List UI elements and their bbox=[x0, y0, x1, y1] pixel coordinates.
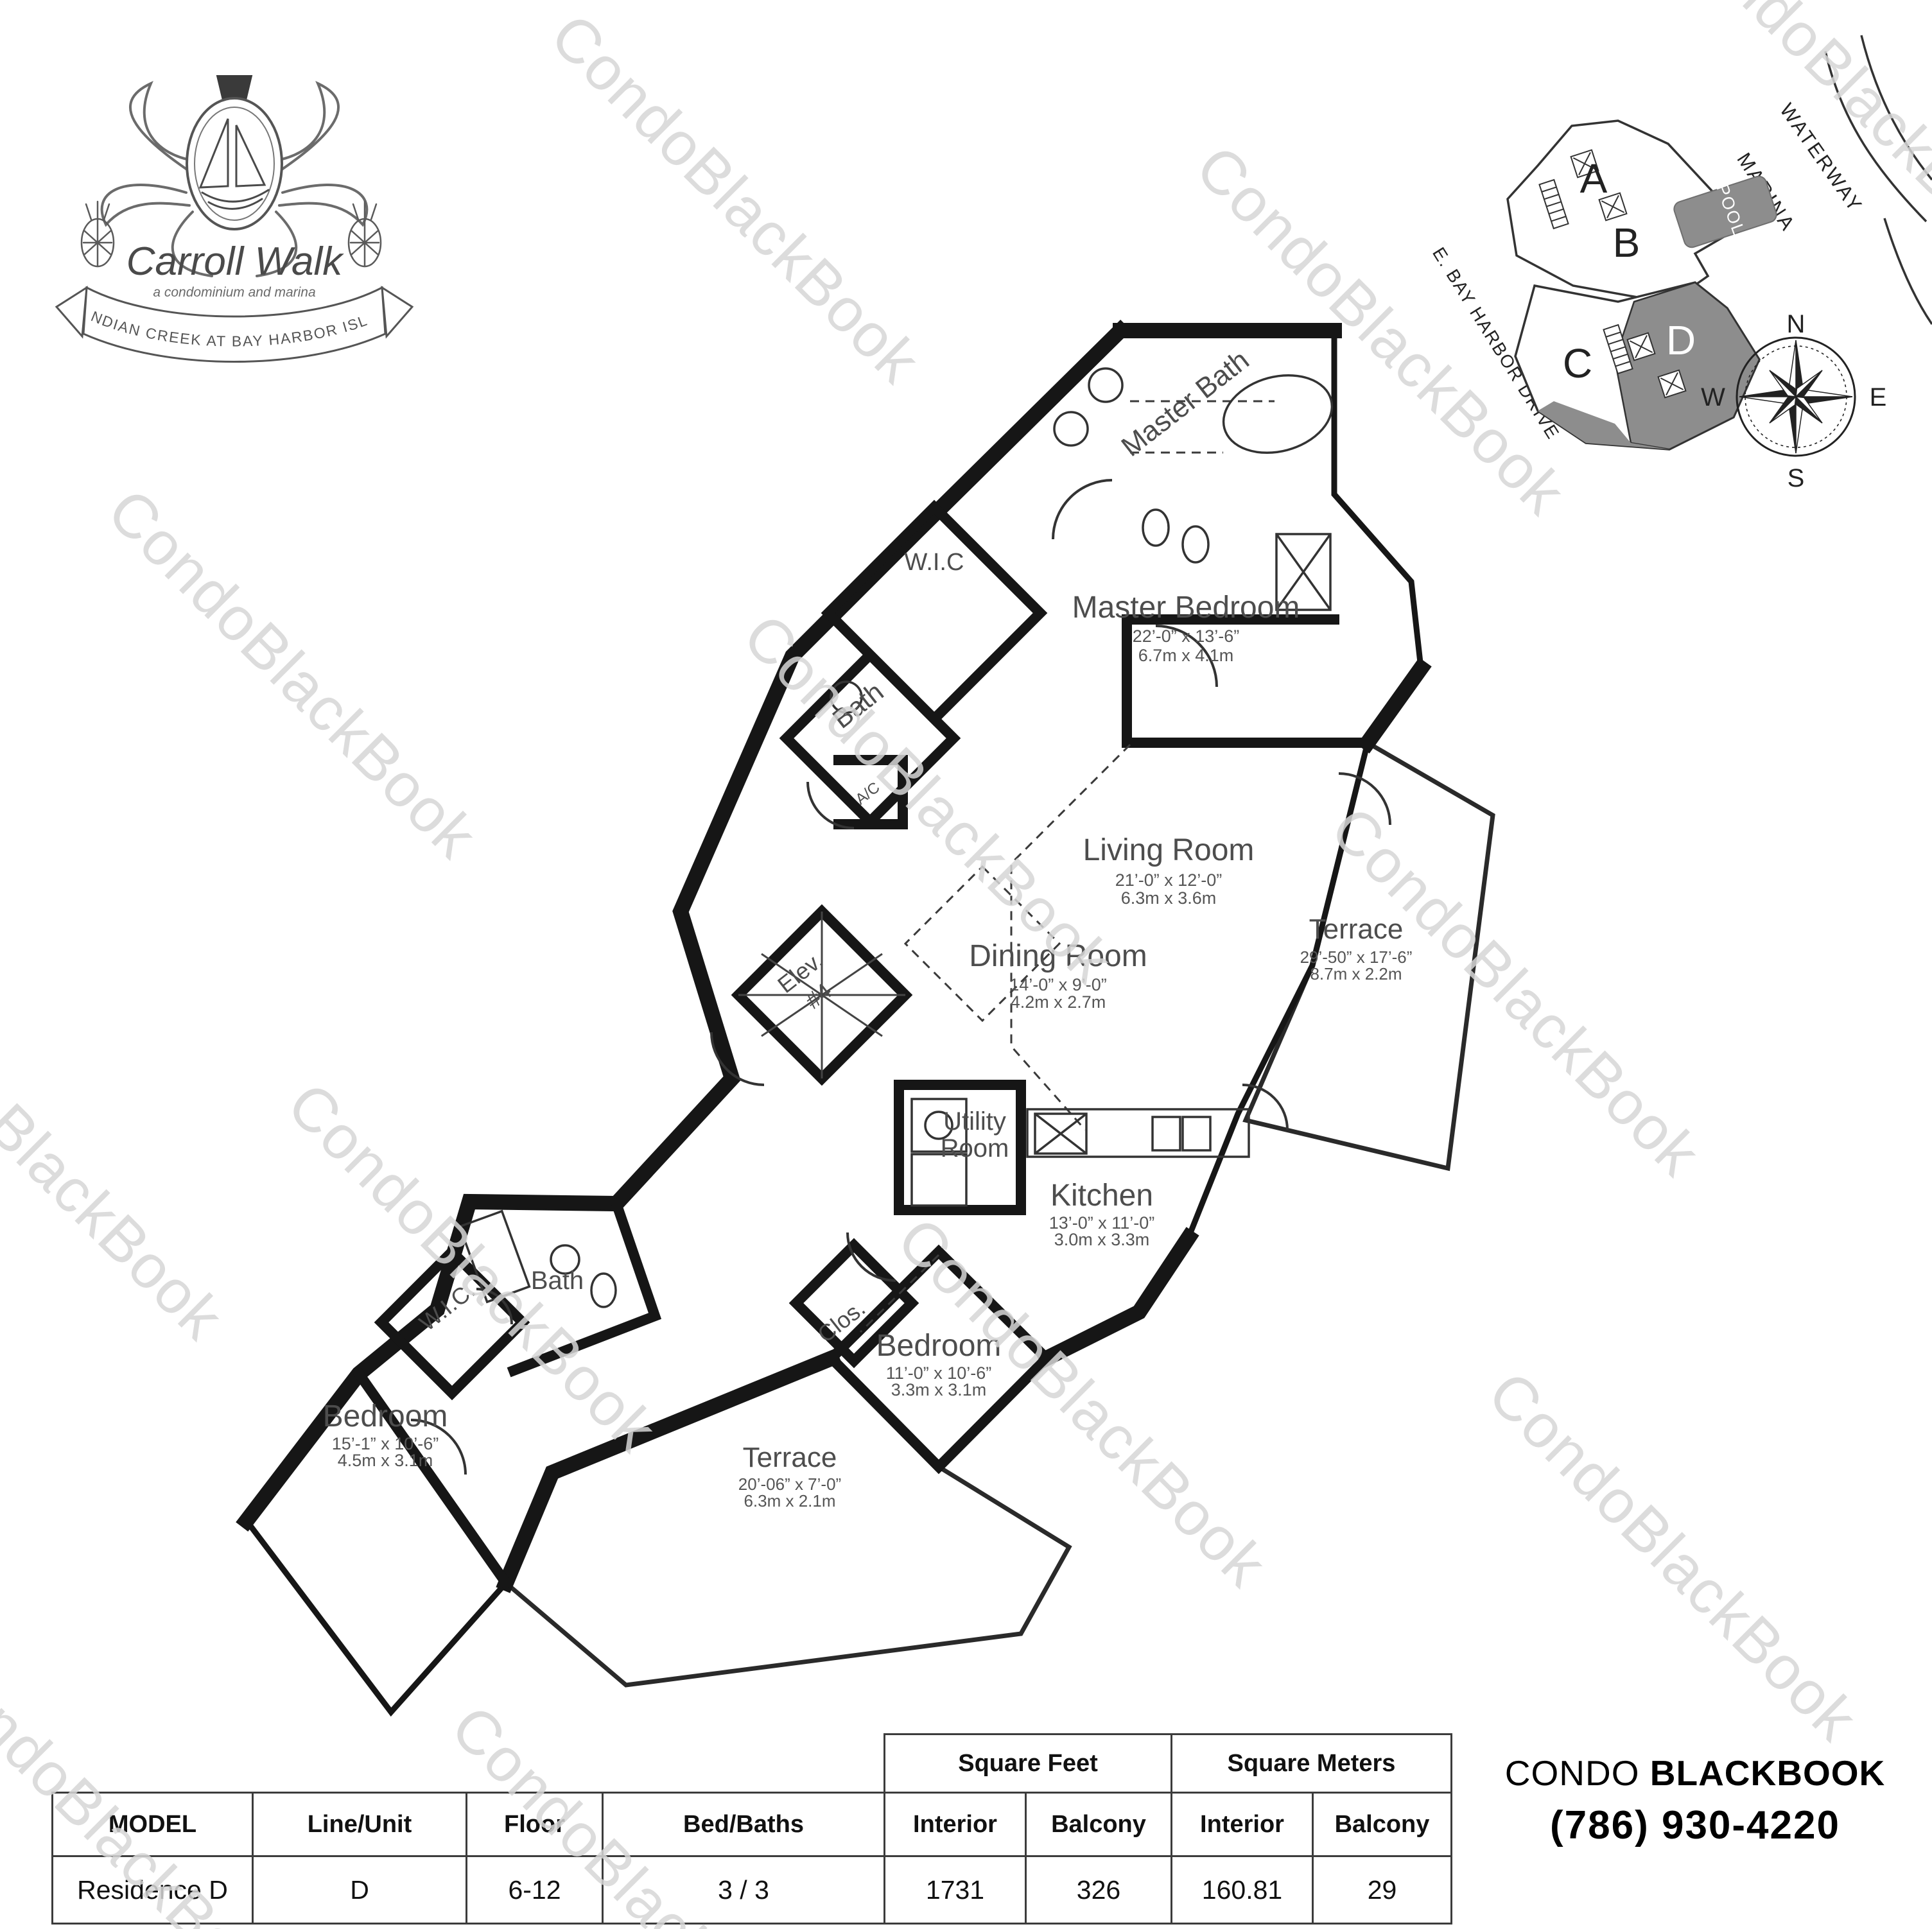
col-header-floor: Floor bbox=[467, 1793, 603, 1856]
table-data-row: Residence D D 6-12 3 / 3 1731 326 160.81… bbox=[53, 1856, 1452, 1924]
logo-subtitle: a condominium and marina bbox=[153, 285, 315, 300]
building-d-highlight bbox=[1615, 282, 1759, 449]
waterway-label: WATERWAY bbox=[1775, 99, 1867, 216]
col-header-line-unit: Line/Unit bbox=[253, 1793, 467, 1856]
room-label-utility-1: Utility bbox=[943, 1107, 1006, 1136]
room-label-kitchen: Kitchen bbox=[1050, 1179, 1153, 1213]
brand-name-bold: BLACKBOOK bbox=[1650, 1753, 1885, 1793]
cell-sqft-interior: 1731 bbox=[885, 1856, 1026, 1924]
room-dim-m: 4.2m x 2.7m bbox=[1011, 992, 1106, 1012]
building-c-label: C bbox=[1563, 340, 1592, 386]
room-label-wic-upper: W.I.C bbox=[905, 549, 964, 576]
room-dim-m: 3.3m x 3.1m bbox=[891, 1380, 987, 1399]
table-spacer bbox=[253, 1734, 467, 1793]
brand-name: CONDO BLACKBOOK bbox=[1477, 1752, 1913, 1794]
compass-e-label: E bbox=[1870, 383, 1887, 411]
room-label-living: Living Room bbox=[1083, 833, 1255, 867]
site-map: WATERWAY MARINA E. BAY HARBOR DRIVE bbox=[1429, 35, 1932, 492]
cell-sqm-interior: 160.81 bbox=[1172, 1856, 1313, 1924]
table-spacer bbox=[467, 1734, 603, 1793]
compass-n-label: N bbox=[1787, 310, 1806, 338]
room-label-utility-2: Room bbox=[941, 1134, 1009, 1163]
room-dim-m: 6.3m x 3.6m bbox=[1121, 888, 1217, 908]
col-header-sqm-interior: Interior bbox=[1172, 1793, 1313, 1856]
building-b-label: B bbox=[1613, 220, 1640, 266]
room-dim-m: 6.3m x 2.1m bbox=[744, 1491, 835, 1510]
table-spacer bbox=[53, 1734, 253, 1793]
branding-block: CONDO BLACKBOOK (786) 930-4220 bbox=[1477, 1752, 1913, 1848]
pineapple-icon-right bbox=[349, 202, 381, 266]
cell-model: Residence D bbox=[53, 1856, 253, 1924]
col-header-sqft-interior: Interior bbox=[885, 1793, 1026, 1856]
building-a-label: A bbox=[1580, 155, 1608, 202]
room-dim-m: 4.5m x 3.1m bbox=[338, 1451, 433, 1470]
room-dim-m: 3.0m x 3.3m bbox=[1054, 1230, 1150, 1249]
group-header-square-feet: Square Feet bbox=[885, 1734, 1172, 1793]
floorplan-drawing: Carroll Walk a condominium and marina ON… bbox=[0, 0, 1932, 1929]
brand-phone: (786) 930-4220 bbox=[1477, 1803, 1913, 1848]
logo-title: Carroll Walk bbox=[126, 239, 344, 284]
room-dim-ft: 22’-0” x 13’-6” bbox=[1133, 627, 1240, 646]
room-dim-m: 6.7m x 4.1m bbox=[1138, 646, 1234, 665]
room-label-bedroom-mid: Bedroom bbox=[876, 1329, 1002, 1363]
table-group-header-row: Square Feet Square Meters bbox=[53, 1734, 1452, 1793]
cell-bed-baths: 3 / 3 bbox=[603, 1856, 885, 1924]
compass-s-label: S bbox=[1788, 464, 1805, 492]
room-label-bath-lower: Bath bbox=[531, 1267, 584, 1295]
logo-crest: Carroll Walk a condominium and marina ON… bbox=[0, 0, 412, 362]
room-dim-m: 8.7m x 2.2m bbox=[1310, 964, 1402, 983]
cell-sqm-balcony: 29 bbox=[1313, 1856, 1452, 1924]
room-label-terrace-lower: Terrace bbox=[743, 1442, 837, 1473]
cell-floor: 6-12 bbox=[467, 1856, 603, 1924]
room-label-bedroom-left: Bedroom bbox=[323, 1399, 448, 1433]
compass-w-label: W bbox=[1701, 383, 1725, 411]
floorplan-sheet: Carroll Walk a condominium and marina ON… bbox=[0, 0, 1932, 1929]
cell-sqft-balcony: 326 bbox=[1026, 1856, 1172, 1924]
spec-table: Square Feet Square Meters MODEL Line/Uni… bbox=[51, 1733, 1452, 1925]
unit-plan: Master Bath W.I.C Master Bedroom 22’-0” … bbox=[247, 331, 1493, 1712]
ribbon-end-right bbox=[382, 288, 412, 336]
ribbon-end-left bbox=[57, 288, 87, 336]
pineapple-icon-left bbox=[82, 202, 114, 266]
col-header-sqm-balcony: Balcony bbox=[1313, 1793, 1452, 1856]
brand-name-light: CONDO bbox=[1505, 1753, 1640, 1793]
col-header-bed-baths: Bed/Baths bbox=[603, 1793, 885, 1856]
col-header-sqft-balcony: Balcony bbox=[1026, 1793, 1172, 1856]
room-label-master-bedroom: Master Bedroom bbox=[1072, 591, 1300, 625]
room-dim-ft: 14’-0” x 9’-0” bbox=[1009, 975, 1107, 994]
room-label-terrace-right: Terrace bbox=[1309, 913, 1404, 945]
col-header-model: MODEL bbox=[53, 1793, 253, 1856]
table-header-row: MODEL Line/Unit Floor Bed/Baths Interior… bbox=[53, 1793, 1452, 1856]
building-d-label: D bbox=[1666, 317, 1696, 363]
room-dim-ft: 21’-0” x 12’-0” bbox=[1115, 870, 1223, 890]
room-label-dining: Dining Room bbox=[969, 939, 1147, 973]
cell-line-unit: D bbox=[253, 1856, 467, 1924]
table-spacer bbox=[603, 1734, 885, 1793]
group-header-square-meters: Square Meters bbox=[1172, 1734, 1452, 1793]
